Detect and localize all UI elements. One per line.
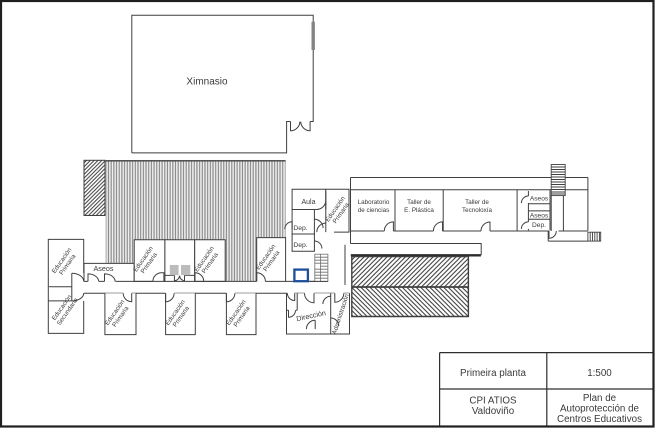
svg-text:Aseos: Aseos <box>94 264 114 273</box>
svg-text:Aseos: Aseos <box>530 213 549 220</box>
svg-text:Laboratorio: Laboratorio <box>358 199 390 206</box>
svg-text:Plan de: Plan de <box>583 393 617 404</box>
svg-text:Aula: Aula <box>301 199 315 206</box>
svg-text:Dep.: Dep. <box>293 225 307 232</box>
svg-text:CPI ATIOS: CPI ATIOS <box>469 395 517 406</box>
svg-text:de ciencias: de ciencias <box>358 207 390 214</box>
svg-text:Autoprotección de: Autoprotección de <box>560 403 640 414</box>
svg-text:Aseos: Aseos <box>530 195 549 202</box>
svg-text:Tecnoloxía: Tecnoloxía <box>462 207 493 214</box>
svg-text:Taller de: Taller de <box>407 199 431 206</box>
svg-text:Dep.: Dep. <box>293 242 307 249</box>
svg-text:Centros Educativos: Centros Educativos <box>557 414 642 425</box>
svg-text:E. Plástica: E. Plástica <box>404 207 434 214</box>
svg-text:Ximnasio: Ximnasio <box>186 77 228 88</box>
svg-text:Primeira planta: Primeira planta <box>460 368 526 379</box>
svg-text:1:500: 1:500 <box>587 368 612 379</box>
svg-text:Dep.: Dep. <box>532 222 546 229</box>
svg-text:Valdoviño: Valdoviño <box>472 406 515 417</box>
svg-text:Taller de: Taller de <box>465 199 489 206</box>
